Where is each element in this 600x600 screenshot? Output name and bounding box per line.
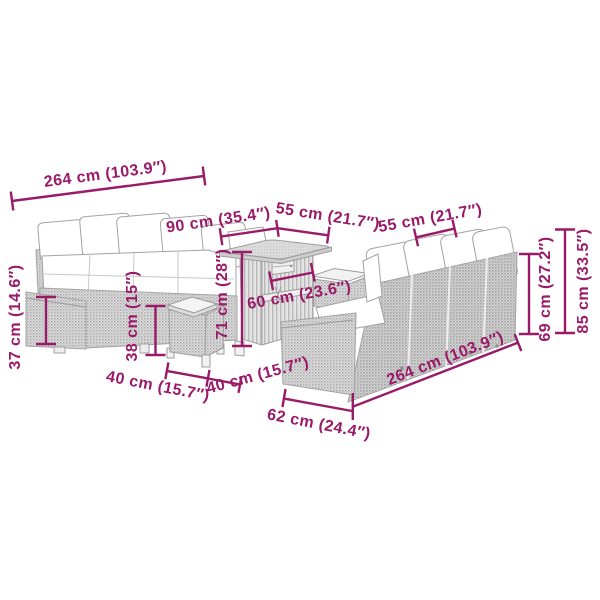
svg-text:38 cm (15″): 38 cm (15″) (124, 271, 141, 362)
svg-text:85 cm (33.5″): 85 cm (33.5″) (575, 228, 592, 333)
svg-text:37 cm (14.6″): 37 cm (14.6″) (7, 264, 24, 369)
svg-text:71 cm (28″): 71 cm (28″) (214, 249, 231, 340)
svg-text:69 cm (27.2″): 69 cm (27.2″) (537, 236, 554, 341)
